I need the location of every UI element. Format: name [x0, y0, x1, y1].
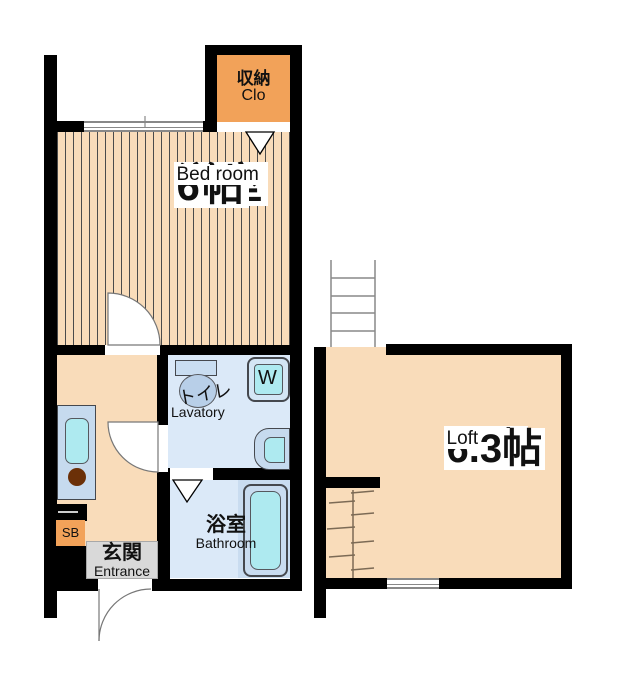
- burner-icon: [68, 468, 86, 486]
- lavatory-door-opening: [157, 425, 168, 472]
- entrance-name: 玄関: [86, 543, 158, 564]
- lavatory-name-en: Lavatory: [171, 405, 225, 420]
- bedroom-bottom-wall: [44, 345, 105, 355]
- lavatory-top-wall: [160, 345, 302, 355]
- bottom-wall-right: [152, 579, 302, 591]
- bathroom-name-en: Bathroom: [170, 536, 282, 551]
- bathroom-left-wall: [157, 480, 170, 590]
- bedroom-name-en: Bed room: [174, 165, 262, 185]
- entrance-door: [99, 589, 151, 641]
- loft-bottom-wall: [326, 578, 561, 589]
- loft-window: [387, 578, 439, 589]
- closet-top-wall: [205, 45, 302, 55]
- closet-labels: 収納 Clo: [217, 70, 290, 105]
- kitchen-lavatory-wall: [157, 355, 168, 425]
- kitchen-sink: [65, 418, 89, 464]
- bedroom-door-opening: [105, 345, 160, 355]
- washer-label: W: [258, 368, 277, 389]
- closet-opening: [217, 122, 290, 132]
- entrance-name-en: Entrance: [86, 564, 158, 579]
- bottom-left-block: [44, 546, 86, 591]
- outer-wall-right: [290, 45, 302, 590]
- loft-inner-wall-stub: [326, 477, 380, 488]
- loft-left-wall: [314, 347, 326, 618]
- loft-name-en: Loft: [444, 429, 482, 449]
- lavatory-sink: [254, 428, 290, 470]
- shoe-box: SB: [56, 520, 85, 546]
- bathroom-name: 浴室: [170, 515, 282, 536]
- under-counter-unit: [57, 504, 87, 521]
- closet-name: 収納: [217, 70, 290, 88]
- bedroom-labels: 洋室 6帖 Bed room: [57, 162, 290, 165]
- loft-labels: ロフト 6.3帖 Loft: [326, 426, 561, 429]
- closet-name-en: Clo: [217, 88, 290, 105]
- loft-top-wall: [386, 344, 572, 355]
- closet-left-wall: [205, 45, 217, 132]
- bathroom-labels: 浴室 Bathroom: [170, 515, 282, 551]
- floor-plan: SB W: [0, 0, 617, 700]
- bedroom-window: [84, 121, 203, 132]
- bathroom-door-panel: [170, 468, 213, 480]
- entrance-labels: 玄関 Entrance: [86, 543, 158, 579]
- shoe-box-label: SB: [62, 525, 79, 540]
- loft-right-wall: [561, 344, 572, 589]
- stairs: [331, 260, 375, 347]
